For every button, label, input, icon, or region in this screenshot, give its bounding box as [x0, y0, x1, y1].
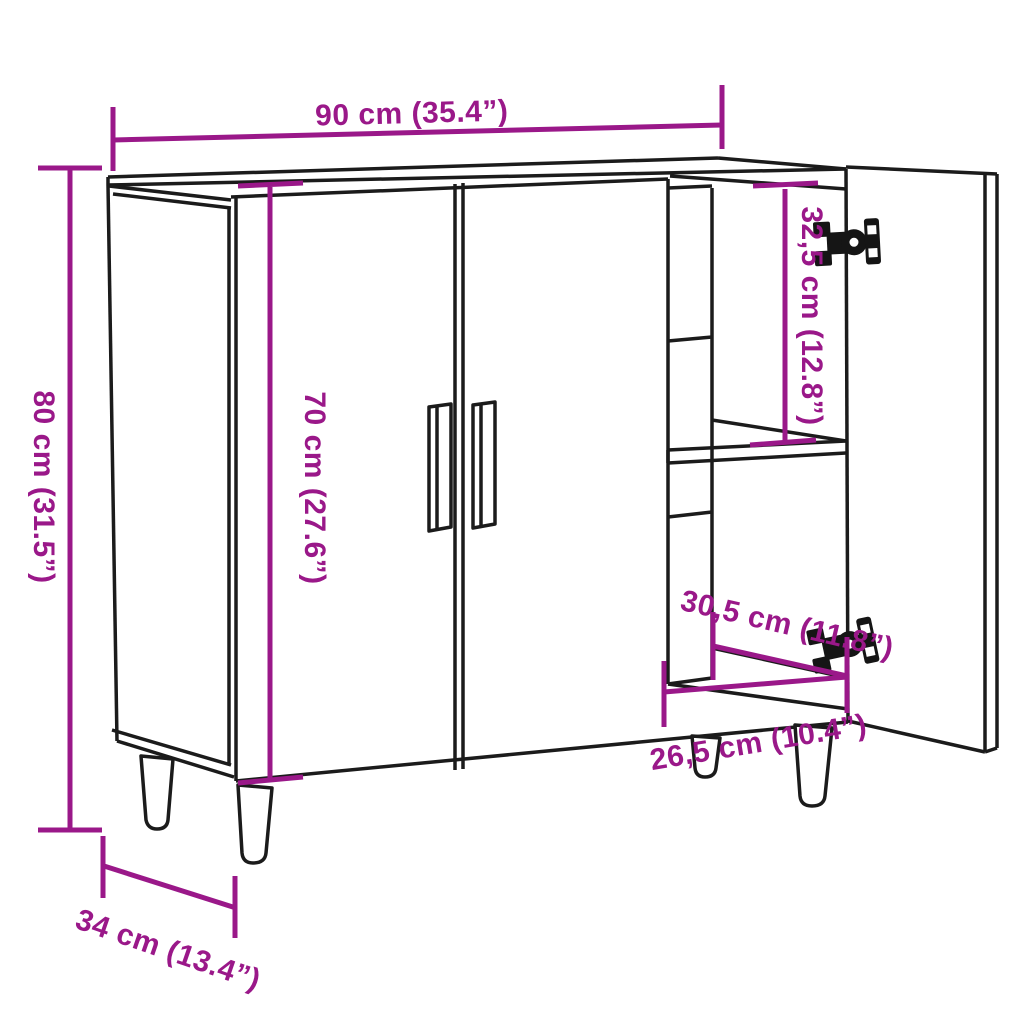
leg-back-left — [141, 756, 173, 829]
cabinet-outline — [108, 158, 997, 863]
dimension-overall-width: 90 cm (35.4”) — [113, 85, 722, 171]
dimension-tick — [753, 183, 818, 186]
leg-front-left — [238, 785, 272, 863]
door-height-label: 70 cm (27.6”) — [298, 391, 331, 584]
dimension-tick — [238, 183, 303, 186]
door-handle-left — [429, 404, 451, 531]
door-handle-right — [473, 402, 495, 528]
dimension-overall-height: 80 cm (31.5”) — [27, 168, 102, 830]
dimension-overall-depth: 34 cm (13.4”) — [71, 836, 264, 997]
dimension-tick — [238, 777, 303, 783]
dimension-upper-compartment-height: 32,5 cm (12.8”) — [750, 183, 828, 445]
compartment-width-label: 26,5 cm (10.4”) — [648, 708, 870, 777]
overall-height-label: 80 cm (31.5”) — [27, 390, 60, 583]
dimension-door-height: 70 cm (27.6”) — [238, 183, 331, 783]
shelf — [668, 420, 846, 463]
overall-width-label: 90 cm (35.4”) — [315, 94, 509, 132]
upper-compartment-height-label: 32,5 cm (12.8”) — [795, 206, 828, 425]
sideboard-dimension-diagram: 90 cm (35.4”) 80 cm (31.5”) 70 cm (27.6”… — [0, 0, 1024, 1024]
dimension-compartment-width: 26,5 cm (10.4”) — [648, 661, 870, 777]
diagram-canvas: 90 cm (35.4”) 80 cm (31.5”) 70 cm (27.6”… — [0, 0, 1024, 1024]
left-side-panel — [108, 185, 236, 781]
dimension-line — [104, 866, 236, 908]
cabinet-top — [108, 158, 846, 208]
